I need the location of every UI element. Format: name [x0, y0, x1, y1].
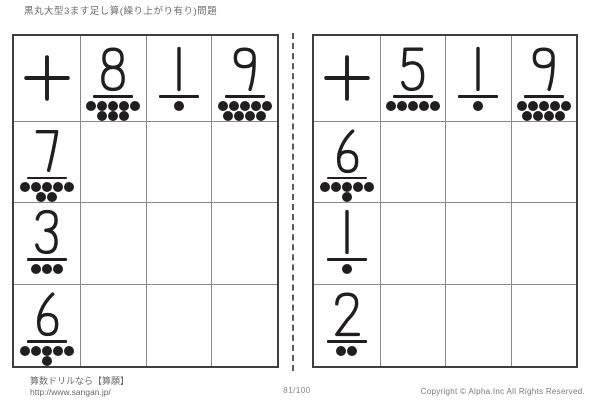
counting-dot: [119, 101, 129, 111]
counting-dot: [174, 101, 184, 111]
number-1-with-dots: [458, 36, 498, 111]
column-header-cell: [380, 36, 446, 121]
counting-dot: [42, 356, 52, 366]
page-number: 81/100: [257, 386, 337, 395]
row-header-cell: [14, 121, 80, 203]
digit-3-glyph: [30, 209, 64, 255]
counting-dot: [262, 101, 272, 111]
footer-site-name: 算数ドリルなら【算願】: [30, 376, 129, 387]
number-underline: [458, 95, 498, 98]
counting-dot: [336, 346, 346, 356]
addition-grid-left: [12, 34, 279, 368]
counting-dot: [47, 192, 57, 202]
answer-cell: [146, 284, 212, 366]
counting-dot: [97, 111, 107, 121]
row-header-cell: [14, 202, 80, 284]
number-9-with-dots: [517, 36, 571, 121]
counting-dot: [353, 182, 363, 192]
dot-group-2: [336, 346, 357, 356]
counting-dot: [240, 101, 250, 111]
digit-9-glyph: [527, 46, 561, 92]
counting-dot: [31, 182, 41, 192]
number-underline: [93, 95, 133, 98]
plus-operator-icon: [321, 52, 373, 104]
counting-dot: [419, 101, 429, 111]
counting-dot: [550, 101, 560, 111]
counting-dot: [31, 346, 41, 356]
counting-dot: [397, 101, 407, 111]
answer-cell: [445, 121, 511, 203]
answer-cell: [511, 202, 577, 284]
dot-group-3: [31, 264, 63, 274]
answer-cell: [380, 202, 446, 284]
number-underline: [27, 340, 67, 343]
counting-dot: [517, 101, 527, 111]
counting-dot: [342, 192, 352, 202]
counting-dot: [108, 101, 118, 111]
counting-dot: [42, 182, 52, 192]
copyright-text: Copyright © Alpha.Inc All Rights Reserve…: [421, 387, 585, 396]
counting-dot: [86, 101, 96, 111]
counting-dot: [20, 346, 30, 356]
answer-cell: [80, 202, 146, 284]
addition-grid-right: [312, 34, 578, 368]
counting-dot: [234, 111, 244, 121]
digit-8-glyph: [96, 46, 130, 92]
digit-2-glyph: [330, 291, 364, 337]
row-header-cell: [314, 121, 380, 203]
answer-cell: [80, 121, 146, 203]
counting-dot: [97, 101, 107, 111]
counting-dot: [539, 101, 549, 111]
dot-group-1: [473, 101, 483, 111]
counting-dot: [64, 346, 74, 356]
answer-cell: [80, 284, 146, 366]
number-6-with-dots: [320, 122, 374, 203]
counting-dot: [256, 111, 266, 121]
counting-dot: [119, 111, 129, 121]
row-header-cell: [314, 284, 380, 366]
number-underline: [225, 95, 265, 98]
number-9-with-dots: [218, 36, 272, 121]
counting-dot: [347, 346, 357, 356]
dashed-cut-line: [292, 33, 294, 371]
number-underline: [393, 95, 433, 98]
dot-group-6: [320, 182, 374, 202]
counting-dot: [229, 101, 239, 111]
number-underline: [327, 340, 367, 343]
number-underline: [27, 258, 67, 261]
column-header-cell: [146, 36, 212, 121]
counting-dot: [53, 182, 63, 192]
counting-dot: [42, 346, 52, 356]
page-title: 黒丸大型3ます足し算(繰り上がり有り)問題: [24, 3, 217, 17]
counting-dot: [218, 101, 228, 111]
dot-group-5: [386, 101, 440, 111]
counting-dot: [223, 111, 233, 121]
counting-dot: [364, 182, 374, 192]
number-underline: [327, 177, 367, 180]
number-1-with-dots: [159, 36, 199, 111]
row-header-cell: [314, 202, 380, 284]
dot-group-1: [342, 264, 352, 274]
operator-cell: [14, 36, 80, 121]
digit-1-glyph: [330, 209, 364, 255]
counting-dot: [64, 182, 74, 192]
dot-group-9: [218, 101, 272, 121]
answer-cell: [211, 121, 277, 203]
answer-cell: [511, 284, 577, 366]
digit-5-glyph: [396, 46, 430, 92]
dot-group-7: [20, 182, 74, 202]
counting-dot: [245, 111, 255, 121]
number-2-with-dots: [327, 285, 367, 356]
number-underline: [159, 95, 199, 98]
answer-cell: [445, 202, 511, 284]
worksheet-page: { "page": { "title": "黒丸大型3ます足し算(繰り上がり有り…: [0, 0, 600, 403]
counting-dot: [342, 264, 352, 274]
number-underline: [327, 258, 367, 261]
counting-dot: [53, 264, 63, 274]
answer-cell: [211, 284, 277, 366]
counting-dot: [53, 346, 63, 356]
counting-dot: [473, 101, 483, 111]
row-header-cell: [14, 284, 80, 366]
number-1-with-dots: [327, 203, 367, 274]
dot-group-9: [517, 101, 571, 121]
counting-dot: [320, 182, 330, 192]
answer-cell: [511, 121, 577, 203]
counting-dot: [342, 182, 352, 192]
footer-site-url: http://www.sangan.jp/: [30, 387, 129, 398]
number-7-with-dots: [20, 122, 74, 203]
counting-dot: [108, 111, 118, 121]
number-3-with-dots: [27, 203, 67, 274]
digit-7-glyph: [30, 128, 64, 174]
counting-dot: [522, 111, 532, 121]
counting-dot: [42, 264, 52, 274]
answer-cell: [380, 121, 446, 203]
dot-group-8: [86, 101, 140, 121]
counting-dot: [331, 182, 341, 192]
counting-dot: [408, 101, 418, 111]
counting-dot: [533, 111, 543, 121]
answer-cell: [211, 202, 277, 284]
answer-cell: [445, 284, 511, 366]
counting-dot: [555, 111, 565, 121]
number-underline: [524, 95, 564, 98]
digit-1-glyph: [461, 46, 495, 92]
counting-dot: [544, 111, 554, 121]
counting-dot: [31, 264, 41, 274]
answer-cell: [146, 202, 212, 284]
counting-dot: [528, 101, 538, 111]
number-8-with-dots: [86, 36, 140, 121]
counting-dot: [36, 192, 46, 202]
column-header-cell: [445, 36, 511, 121]
counting-dot: [386, 101, 396, 111]
operator-cell: [314, 36, 380, 121]
answer-cell: [146, 121, 212, 203]
counting-dot: [251, 101, 261, 111]
digit-9-glyph: [228, 46, 262, 92]
plus-operator-icon: [21, 52, 73, 104]
digit-1-glyph: [162, 46, 196, 92]
counting-dot: [561, 101, 571, 111]
counting-dot: [430, 101, 440, 111]
counting-dot: [130, 101, 140, 111]
column-header-cell: [211, 36, 277, 121]
answer-cell: [380, 284, 446, 366]
footer-site-block: 算数ドリルなら【算願】 http://www.sangan.jp/: [30, 376, 129, 398]
column-header-cell: [511, 36, 577, 121]
counting-dot: [20, 182, 30, 192]
number-underline: [27, 177, 67, 180]
column-header-cell: [80, 36, 146, 121]
dot-group-1: [174, 101, 184, 111]
digit-6-glyph: [30, 291, 64, 337]
number-5-with-dots: [386, 36, 440, 111]
number-6-with-dots: [20, 285, 74, 366]
dot-group-6: [20, 346, 74, 366]
digit-6-glyph: [330, 128, 364, 174]
